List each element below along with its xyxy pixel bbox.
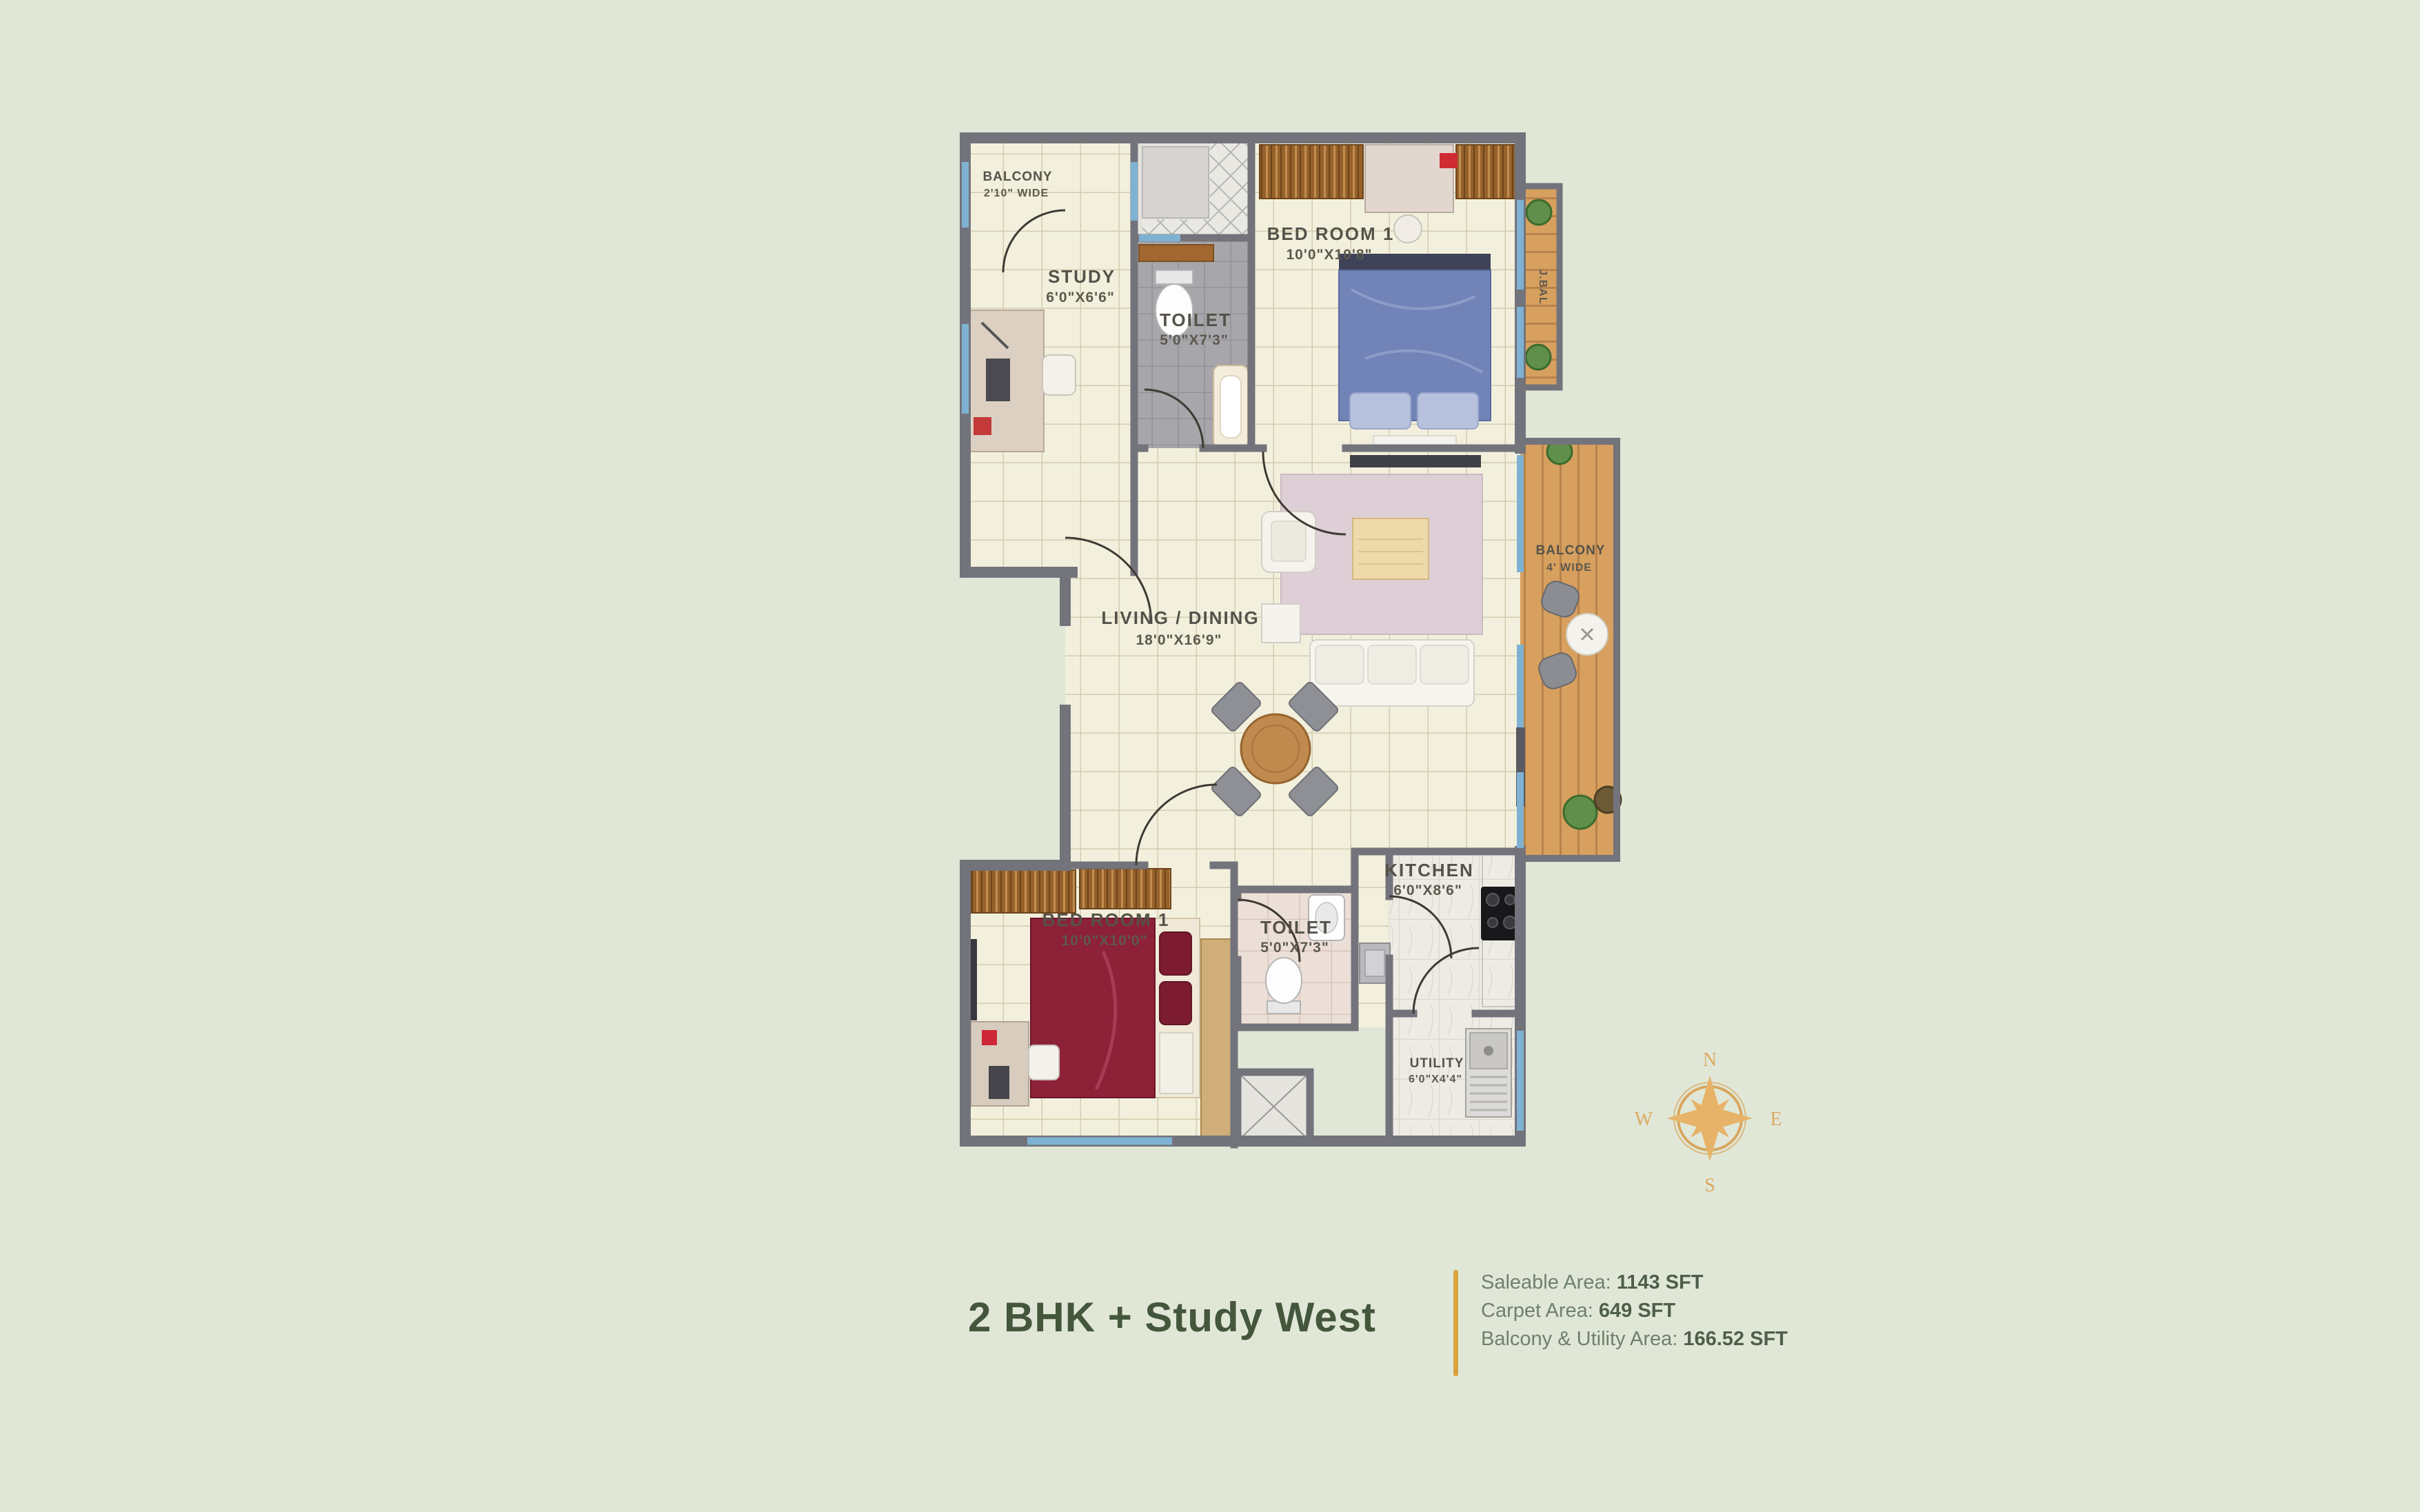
area-stats: Saleable Area: 1143 SFT Carpet Area: 649… <box>1481 1269 1788 1353</box>
dresser-red-item <box>1440 153 1458 168</box>
foyer-slab <box>1142 147 1209 218</box>
stat-balcony-utility-area: Balcony & Utility Area: 166.52 SFT <box>1481 1325 1788 1353</box>
label-utility-dims: 6'0"X4'4" <box>1409 1073 1462 1085</box>
wc <box>1266 958 1302 1003</box>
stat-label: Saleable Area: <box>1481 1271 1617 1293</box>
toilet-top-counter <box>1139 245 1213 261</box>
label-kitchen-dims: 6'0"X8'6" <box>1393 883 1462 898</box>
floorplan-page: BALCONY 2'10" WIDE STUDY 6'0"X6'6" TOILE… <box>0 0 2420 1512</box>
label-jbal: J.BAL <box>1537 269 1549 304</box>
label-utility: UTILITY <box>1410 1056 1464 1071</box>
desk-red-item <box>982 1030 997 1045</box>
study-chair <box>1042 355 1076 395</box>
stat-value: 166.52 SFT <box>1683 1328 1788 1350</box>
label-bedroom-top-dims: 10'0"X10'8" <box>1287 247 1373 263</box>
stat-value: 1143 SFT <box>1617 1271 1704 1293</box>
label-balcony-top: BALCONY <box>983 170 1053 184</box>
plant <box>1526 345 1551 370</box>
pillow <box>1160 982 1191 1025</box>
bed-bench <box>1160 1033 1193 1093</box>
label-bedroom-top: BED ROOM 1 <box>1267 223 1395 244</box>
study-red-item <box>974 417 991 435</box>
label-balcony-right-dims: 4' WIDE <box>1546 562 1592 574</box>
label-study: STUDY <box>1048 266 1116 287</box>
label-toilet-top-dims: 5'0"X7'3" <box>1160 332 1229 348</box>
desk-chair <box>1029 1045 1059 1080</box>
side-table <box>1262 604 1300 643</box>
compass-cardinal-star <box>1667 1076 1753 1161</box>
pillow <box>1418 393 1478 429</box>
label-balcony-right: BALCONY <box>1536 543 1606 558</box>
compass-n: N <box>1703 1049 1717 1071</box>
stool <box>1394 215 1422 243</box>
label-living-dims: 18'0"X16'9" <box>1136 632 1222 648</box>
label-toilet-bottom-dims: 5'0"X7'3" <box>1260 940 1329 956</box>
plan-title: 2 BHK + Study West <box>968 1293 1376 1341</box>
label-living: LIVING / DINING <box>1101 607 1259 628</box>
label-toilet-top: TOILET <box>1160 310 1231 330</box>
label-bedroom-bottom: BED ROOM 1 <box>1042 909 1170 930</box>
wardrobe <box>971 870 1076 913</box>
stat-carpet-area: Carpet Area: 649 SFT <box>1481 1297 1788 1325</box>
compass-e: E <box>1770 1109 1782 1130</box>
tv-unit <box>1350 455 1481 467</box>
utility-fixtures <box>1466 1029 1511 1117</box>
stat-saleable-area: Saleable Area: 1143 SFT <box>1481 1269 1788 1297</box>
coffee-table <box>1353 518 1429 579</box>
pillow <box>1350 393 1411 429</box>
footer-accent-divider <box>1453 1270 1458 1376</box>
wardrobe <box>1080 869 1171 909</box>
label-kitchen: KITCHEN <box>1384 860 1474 880</box>
stat-value: 649 SFT <box>1599 1300 1675 1322</box>
pillow <box>1160 932 1191 975</box>
label-bedroom-bottom-dims: 10'0"X10'0" <box>1062 933 1148 949</box>
label-toilet-bottom: TOILET <box>1260 917 1332 938</box>
stat-label: Balcony & Utility Area: <box>1481 1328 1683 1350</box>
room-balcony-top <box>965 138 1134 272</box>
label-study-dims: 6'0"X6'6" <box>1046 290 1115 305</box>
plant <box>1526 200 1551 225</box>
label-balcony-top-dims: 2'10" WIDE <box>984 188 1049 199</box>
floorplan-drawing: BALCONY 2'10" WIDE STUDY 6'0"X6'6" TOILE… <box>0 0 2420 1512</box>
shaft <box>1238 1072 1310 1141</box>
plant <box>1564 796 1597 829</box>
compass-s: S <box>1704 1175 1715 1196</box>
closet <box>1201 939 1233 1139</box>
compass-rose-icon: N E S W <box>1635 1049 1782 1196</box>
stat-label: Carpet Area: <box>1481 1300 1599 1322</box>
wardrobe <box>1260 145 1363 199</box>
compass-w: W <box>1635 1109 1653 1130</box>
wardrobe <box>1456 145 1518 199</box>
